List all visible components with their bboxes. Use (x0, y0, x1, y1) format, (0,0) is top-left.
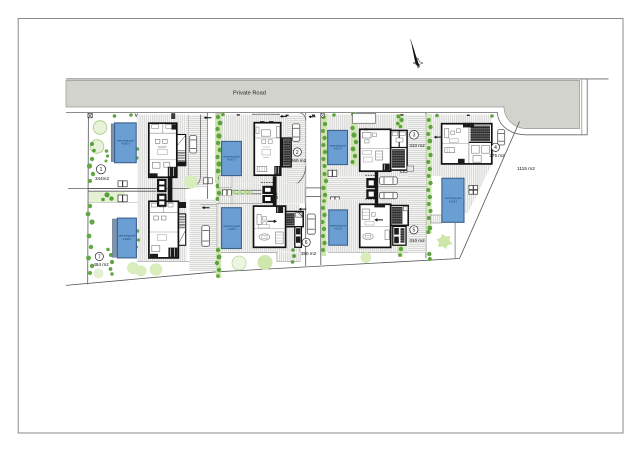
svg-text:4: 4 (494, 145, 497, 151)
svg-text:310 m2: 310 m2 (409, 238, 425, 243)
svg-text:310 m2: 310 m2 (409, 143, 425, 148)
svg-text:4.0x8.0: 4.0x8.0 (123, 238, 132, 241)
svg-text:Private Road: Private Road (233, 90, 266, 96)
svg-text:4.0x8.0: 4.0x8.0 (121, 143, 130, 146)
svg-text:4.0x8.0: 4.0x8.0 (227, 228, 236, 231)
svg-text:6: 6 (305, 240, 308, 246)
svg-text:4.0x7.0: 4.0x7.0 (333, 148, 342, 151)
svg-text:3: 3 (413, 133, 416, 139)
svg-text:484 m2: 484 m2 (93, 262, 109, 267)
svg-text:2: 2 (296, 150, 299, 156)
svg-text:344m2: 344m2 (95, 176, 109, 181)
svg-text:7: 7 (98, 254, 101, 260)
svg-text:350 m2: 350 m2 (301, 251, 317, 256)
svg-text:4.0x7.0: 4.0x7.0 (334, 228, 343, 231)
svg-text:1: 1 (100, 167, 103, 173)
svg-text:5: 5 (413, 228, 416, 234)
svg-text:4.0x7.0: 4.0x7.0 (227, 159, 236, 162)
svg-text:1115 m2: 1115 m2 (517, 166, 535, 172)
svg-text:375 m2: 375 m2 (489, 153, 505, 158)
svg-text:260 m2: 260 m2 (291, 158, 307, 163)
svg-text:4.5x9.0: 4.5x9.0 (449, 200, 458, 203)
